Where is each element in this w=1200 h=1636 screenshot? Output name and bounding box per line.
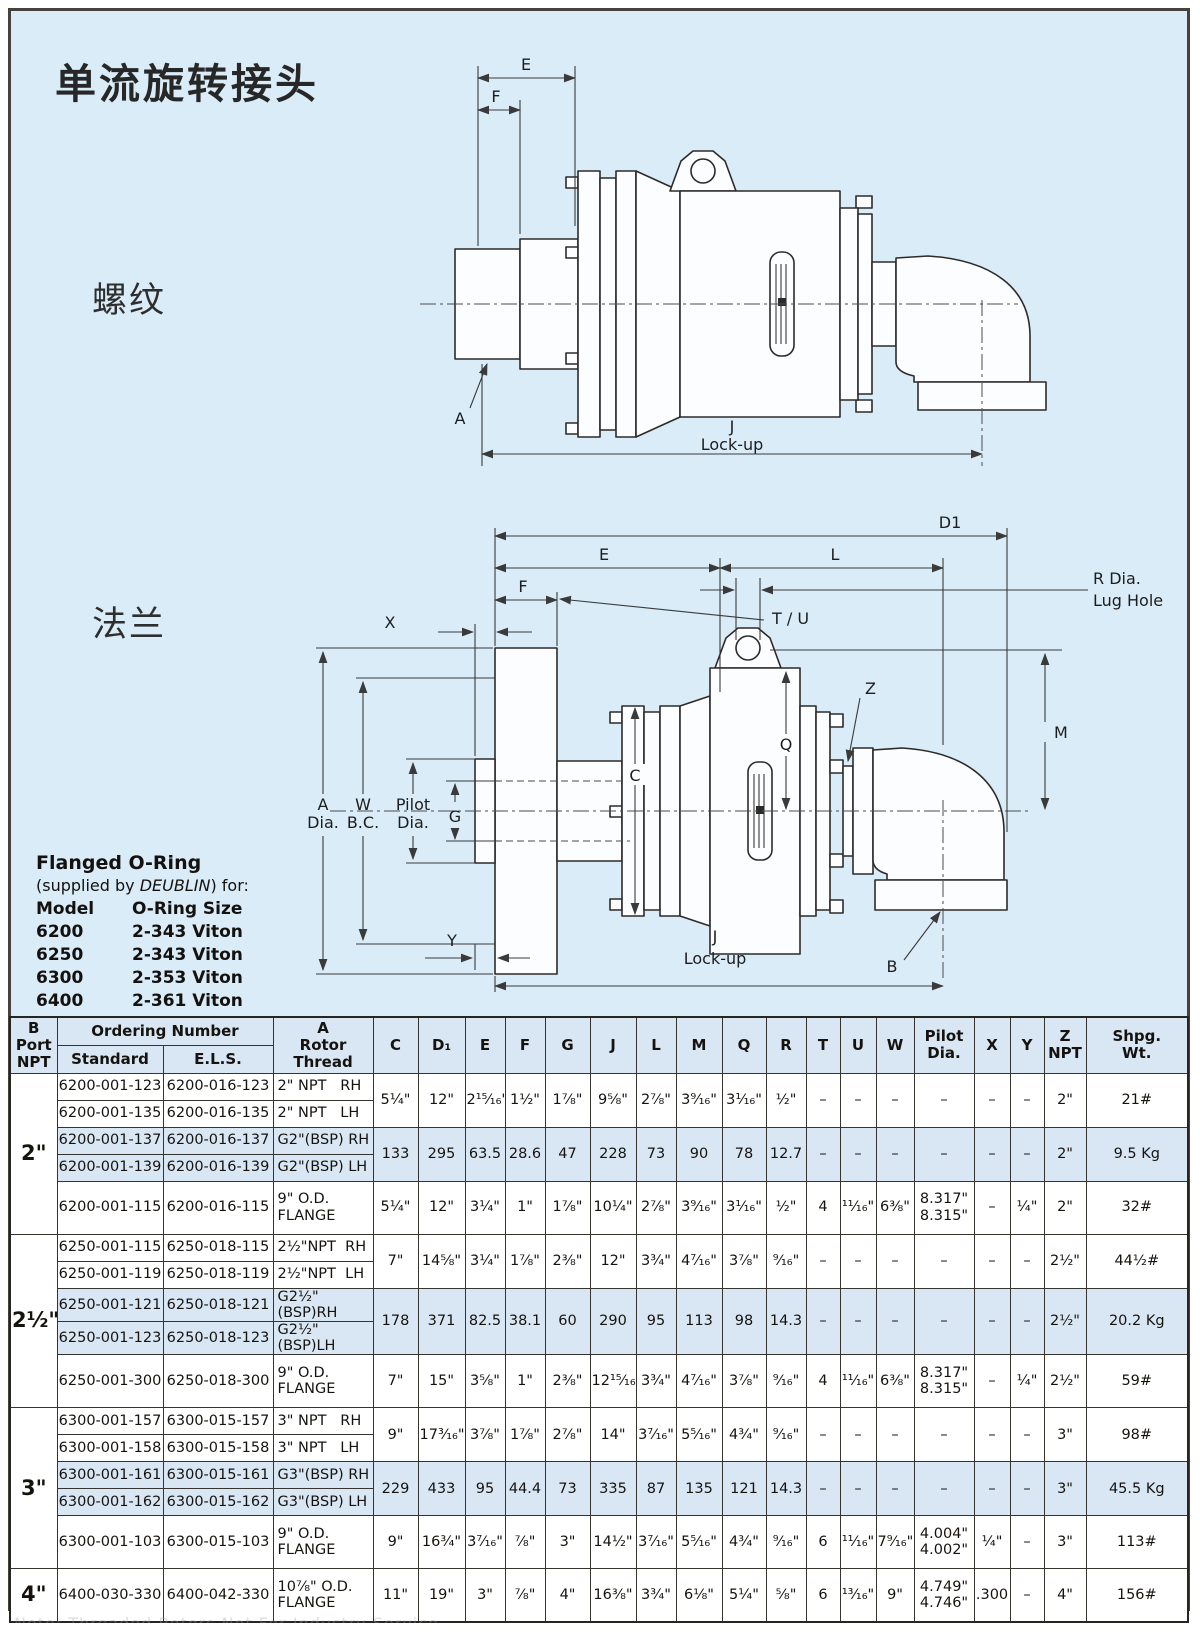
spec-cell: 2½"NPT LH (273, 1261, 373, 1288)
spec-cell: – (1010, 1516, 1044, 1569)
spec-cell: 12" (418, 1073, 465, 1127)
spec-cell: 9" O.D. FLANGE (273, 1516, 373, 1569)
spec-cell: 44½# (1086, 1234, 1188, 1288)
spec-cell: 3⅞" (465, 1408, 505, 1462)
svg-text:E: E (599, 545, 609, 564)
spec-cell: ⁹⁄₁₆" (766, 1234, 806, 1288)
spec-cell: – (806, 1288, 840, 1355)
spec-cell: – (876, 1288, 914, 1355)
spec-cell: – (1010, 1234, 1044, 1288)
spec-cell: 6⅜" (876, 1181, 914, 1234)
spec-cell: 6200-016-137 (163, 1127, 273, 1154)
spec-cell: – (914, 1073, 974, 1127)
svg-text:J: J (729, 417, 735, 436)
label-threaded: 螺纹 (92, 272, 166, 323)
brand-name: DEUBLIN (140, 876, 211, 895)
spec-cell: 12" (590, 1234, 636, 1288)
spec-cell: 4" (1044, 1569, 1086, 1622)
spec-cell: 6300-001-103 (57, 1516, 163, 1569)
spec-cell: 1⅞" (545, 1181, 590, 1234)
spec-cell: G2"(BSP) LH (273, 1154, 373, 1181)
spec-cell: 14.3 (766, 1462, 806, 1516)
spec-cell: 95 (636, 1288, 676, 1355)
svg-text:C: C (629, 766, 640, 785)
spec-cell: 2" (1044, 1073, 1086, 1127)
spec-cell: 6200-016-135 (163, 1100, 273, 1127)
spec-cell: 3" (1044, 1516, 1086, 1569)
spec-cell: 1⅞" (545, 1073, 590, 1127)
spec-cell: 2⅜" (545, 1355, 590, 1408)
spec-cell: 14" (590, 1408, 636, 1462)
spec-cell: 6250-018-123 (163, 1321, 273, 1354)
spec-cell: 14.3 (766, 1288, 806, 1355)
svg-text:Dia.: Dia. (307, 813, 339, 832)
spec-cell: 44.4 (505, 1462, 545, 1516)
flanged-drawing: D1 E L F X T / U R Dia. Lug Hole Z (290, 500, 1160, 1032)
spec-header-cell: U (840, 1017, 876, 1073)
spec-cell: ⁹⁄₁₆" (766, 1516, 806, 1569)
spec-header-cell: D₁ (418, 1017, 465, 1073)
spec-cell: 7⁹⁄₁₆" (876, 1516, 914, 1569)
elbow-outlet-flange (875, 880, 1007, 910)
spec-cell: 3⁷⁄₁₆" (636, 1516, 676, 1569)
svg-text:E: E (521, 55, 531, 74)
spec-cell: – (914, 1408, 974, 1462)
spec-cell: 59# (1086, 1355, 1188, 1408)
spec-cell: 2½"NPT RH (273, 1234, 373, 1261)
svg-text:G: G (449, 807, 461, 826)
spec-cell: 4 (806, 1181, 840, 1234)
spec-cell: – (914, 1288, 974, 1355)
spec-cell: 229 (373, 1462, 418, 1516)
spec-cell: 21# (1086, 1073, 1188, 1127)
spec-cell: 16¾" (418, 1516, 465, 1569)
svg-text:W: W (355, 795, 371, 814)
spec-cell: 6300-001-158 (57, 1435, 163, 1462)
spec-cell: 63.5 (465, 1127, 505, 1181)
spec-cell: 6200-016-123 (163, 1073, 273, 1100)
spec-cell: 6300-015-161 (163, 1462, 273, 1489)
spec-cell: 121 (722, 1462, 766, 1516)
spec-cell: 5⁵⁄₁₆" (676, 1408, 722, 1462)
spec-cell: 3" (545, 1516, 590, 1569)
spec-cell: ⅝" (766, 1569, 806, 1622)
spec-cell: – (806, 1127, 840, 1181)
svg-text:F: F (491, 87, 500, 106)
spec-cell: 14½" (590, 1516, 636, 1569)
spec-cell: 2⅞" (636, 1073, 676, 1127)
spec-cell: 6300-015-162 (163, 1489, 273, 1516)
spec-cell: 5¼" (373, 1181, 418, 1234)
spec-cell: 3⅞" (722, 1355, 766, 1408)
spec-cell: 82.5 (465, 1288, 505, 1355)
threaded-drawing: E F A J Lock-up (370, 46, 1070, 486)
spec-cell: 2½" (1044, 1355, 1086, 1408)
spec-cell: 3⁷⁄₁₆" (465, 1516, 505, 1569)
spec-cell: 12¹⁵⁄₁₆" (590, 1355, 636, 1408)
spec-header-cell: Shpg. Wt. (1086, 1017, 1188, 1073)
spec-cell: 5¼" (722, 1569, 766, 1622)
svg-text:Z: Z (865, 679, 876, 698)
spec-cell: ¼" (974, 1516, 1010, 1569)
spec-header-cell: W (876, 1017, 914, 1073)
spec-cell: 2¹⁵⁄₁₆" (465, 1073, 505, 1127)
spec-cell: 6200-001-137 (57, 1127, 163, 1154)
spec-cell: 14⅝" (418, 1234, 465, 1288)
spec-cell: 6250-018-115 (163, 1234, 273, 1261)
spec-cell: 6300-001-161 (57, 1462, 163, 1489)
spec-cell: 78 (722, 1127, 766, 1181)
oring-row: 62502-343 Viton (36, 944, 346, 967)
spec-cell: 2½" (10, 1234, 57, 1408)
lug-hole (691, 159, 715, 183)
spec-cell: 28.6 (505, 1127, 545, 1181)
spec-header-cell: E (465, 1017, 505, 1073)
page-title: 单流旋转接头 (55, 50, 319, 110)
spec-cell: 3" NPT LH (273, 1435, 373, 1462)
spec-cell: 6200-001-115 (57, 1181, 163, 1234)
spec-cell: 2⅞" (636, 1181, 676, 1234)
spec-cell: 433 (418, 1462, 465, 1516)
spec-cell: – (876, 1073, 914, 1127)
spec-cell: G3"(BSP) RH (273, 1462, 373, 1489)
svg-text:L: L (831, 545, 840, 564)
svg-text:Dia.: Dia. (397, 813, 429, 832)
spec-cell: 2½" (1044, 1288, 1086, 1355)
spec-cell: 3⁹⁄₁₆" (676, 1181, 722, 1234)
spec-cell: – (876, 1234, 914, 1288)
spec-cell: 90 (676, 1127, 722, 1181)
spec-cell: 20.2 Kg (1086, 1288, 1188, 1355)
svg-text:Y: Y (446, 931, 457, 950)
spec-cell: 6250-001-119 (57, 1261, 163, 1288)
spec-cell: 3" (1044, 1462, 1086, 1516)
spec-cell: 3¼" (465, 1234, 505, 1288)
spec-cell: 1" (505, 1355, 545, 1408)
svg-text:F: F (518, 577, 527, 596)
spec-cell: – (876, 1408, 914, 1462)
oring-row: 62002-343 Viton (36, 921, 346, 944)
spec-cell: ½" (766, 1181, 806, 1234)
flanged-union-body (475, 628, 1007, 974)
spec-header-cell: R (766, 1017, 806, 1073)
spec-cell: 1" (505, 1181, 545, 1234)
spec-cell: 3⅞" (722, 1234, 766, 1288)
spec-cell: 3¹⁄₁₆" (722, 1181, 766, 1234)
spec-cell: ⁹⁄₁₆" (766, 1408, 806, 1462)
spec-cell: 17³⁄₁₆" (418, 1408, 465, 1462)
svg-text:A: A (318, 795, 329, 814)
spec-cell: 8.317" 8.315" (914, 1181, 974, 1234)
spec-cell: 2⅞" (545, 1408, 590, 1462)
spec-cell: – (914, 1462, 974, 1516)
svg-text:X: X (385, 613, 396, 632)
spec-cell: ½" (766, 1073, 806, 1127)
spec-cell: 12" (418, 1181, 465, 1234)
spec-cell: 73 (636, 1127, 676, 1181)
spec-cell: ¹³⁄₁₆" (840, 1569, 876, 1622)
spec-cell: 3¼" (465, 1181, 505, 1234)
spec-header-cell: A Rotor Thread (273, 1017, 373, 1073)
spec-cell: – (806, 1408, 840, 1462)
spec-cell: 9" O.D. FLANGE (273, 1355, 373, 1408)
oring-supplied: (supplied by DEUBLIN) for: (36, 876, 346, 895)
spec-cell: – (974, 1408, 1010, 1462)
spec-cell: 2" (1044, 1181, 1086, 1234)
spec-cell: 9" (373, 1408, 418, 1462)
spec-cell: 3" (1044, 1408, 1086, 1462)
spec-cell: 290 (590, 1288, 636, 1355)
spec-cell: 3⁹⁄₁₆" (676, 1073, 722, 1127)
spec-cell: – (1010, 1288, 1044, 1355)
svg-text:T / U: T / U (771, 609, 809, 628)
spec-cell: – (914, 1127, 974, 1181)
spec-header-cell: G (545, 1017, 590, 1073)
spec-header-cell: C (373, 1017, 418, 1073)
spec-cell: 228 (590, 1127, 636, 1181)
spec-cell: 1½" (505, 1073, 545, 1127)
spec-cell: 2" NPT LH (273, 1100, 373, 1127)
svg-text:D1: D1 (939, 513, 962, 532)
spec-cell: 7" (373, 1355, 418, 1408)
spec-table: B Port NPTOrdering NumberA Rotor ThreadC… (9, 1016, 1189, 1623)
spec-cell: 60 (545, 1288, 590, 1355)
spec-cell: 1⅞" (505, 1408, 545, 1462)
svg-text:Q: Q (780, 735, 793, 754)
spec-cell: 156# (1086, 1569, 1188, 1622)
spec-cell: 15" (418, 1355, 465, 1408)
spec-cell: – (840, 1127, 876, 1181)
spec-cell: 3⅝" (465, 1355, 505, 1408)
spec-cell: 6250-018-300 (163, 1355, 273, 1408)
spec-header-cell: E.L.S. (163, 1045, 273, 1073)
spec-cell: 6200-001-123 (57, 1073, 163, 1100)
spec-cell: 4 (806, 1355, 840, 1408)
spec-cell: 6250-001-115 (57, 1234, 163, 1261)
spec-cell: 73 (545, 1462, 590, 1516)
label-flanged: 法兰 (92, 596, 166, 647)
svg-text:Pilot: Pilot (396, 795, 430, 814)
spec-cell: 38.1 (505, 1288, 545, 1355)
spec-cell: 2" (10, 1073, 57, 1234)
oring-row: 64002-361 Viton (36, 990, 346, 1013)
spec-cell: 113 (676, 1288, 722, 1355)
threaded-union-body (455, 151, 1046, 437)
spec-cell: 3¾" (636, 1234, 676, 1288)
spec-cell: 6200-016-115 (163, 1181, 273, 1234)
spec-cell: 6250-001-121 (57, 1288, 163, 1321)
spec-cell: – (974, 1355, 1010, 1408)
spec-cell: – (1010, 1127, 1044, 1181)
spec-cell: 47 (545, 1127, 590, 1181)
spec-cell: G2½"(BSP)RH (273, 1288, 373, 1321)
spec-cell: – (806, 1462, 840, 1516)
svg-text:J: J (712, 927, 718, 946)
elbow (873, 748, 1004, 880)
spec-cell: – (974, 1462, 1010, 1516)
spec-cell: 6⅜" (876, 1355, 914, 1408)
spec-cell: 6300-015-157 (163, 1408, 273, 1435)
spec-cell: 3" NPT RH (273, 1408, 373, 1435)
spec-cell: G2½"(BSP)LH (273, 1321, 373, 1354)
spec-cell: 1⅞" (505, 1234, 545, 1288)
spec-cell: 6250-018-119 (163, 1261, 273, 1288)
spec-cell: 6200-001-139 (57, 1154, 163, 1181)
spec-cell: 6300-015-158 (163, 1435, 273, 1462)
spec-cell: – (974, 1234, 1010, 1288)
spec-cell: – (876, 1127, 914, 1181)
spec-cell: – (1010, 1408, 1044, 1462)
spec-cell: 6300-015-103 (163, 1516, 273, 1569)
spec-cell: G2"(BSP) RH (273, 1127, 373, 1154)
svg-text:B.C.: B.C. (347, 813, 379, 832)
spec-cell: 3" (10, 1408, 57, 1569)
spec-header-cell: Pilot Dia. (914, 1017, 974, 1073)
spec-cell: 4⁷⁄₁₆" (676, 1234, 722, 1288)
spec-cell: – (806, 1234, 840, 1288)
spec-cell: – (1010, 1462, 1044, 1516)
svg-text:B: B (887, 957, 898, 976)
spec-cell: – (840, 1288, 876, 1355)
spec-cell: 5⁵⁄₁₆" (676, 1516, 722, 1569)
spec-cell: 9⅝" (590, 1073, 636, 1127)
spec-header-cell: Ordering Number (57, 1017, 273, 1045)
spec-cell: 6250-018-121 (163, 1288, 273, 1321)
spec-cell: 2" NPT RH (273, 1073, 373, 1100)
spec-cell: ¹¹⁄₁₆" (840, 1355, 876, 1408)
spec-cell: – (974, 1181, 1010, 1234)
spec-cell: – (974, 1127, 1010, 1181)
spec-cell: 95 (465, 1462, 505, 1516)
lug-hole (736, 636, 760, 660)
spec-header-cell: Z NPT (1044, 1017, 1086, 1073)
spec-cell: 4.004" 4.002" (914, 1516, 974, 1569)
spec-cell: 9" (876, 1569, 914, 1622)
svg-text:A: A (455, 409, 466, 428)
spec-cell: 135 (676, 1462, 722, 1516)
spec-cell: 133 (373, 1127, 418, 1181)
spec-cell: 295 (418, 1127, 465, 1181)
spec-header-cell: J (590, 1017, 636, 1073)
spec-cell: – (806, 1073, 840, 1127)
spec-header-cell: Y (1010, 1017, 1044, 1073)
spec-cell: 3⁷⁄₁₆" (636, 1408, 676, 1462)
spec-header-cell: L (636, 1017, 676, 1073)
spec-cell: – (1010, 1569, 1044, 1622)
spec-header-cell: B Port NPT (10, 1017, 57, 1073)
svg-text:M: M (1054, 723, 1068, 742)
spec-cell: 335 (590, 1462, 636, 1516)
spec-header-cell: F (505, 1017, 545, 1073)
spec-cell: 2½" (1044, 1234, 1086, 1288)
svg-text:Lug Hole: Lug Hole (1093, 591, 1163, 610)
spec-cell: ¼" (1010, 1355, 1044, 1408)
svg-text:Lock-up: Lock-up (684, 949, 747, 968)
spec-cell: 87 (636, 1462, 676, 1516)
spec-cell: 98 (722, 1288, 766, 1355)
spec-header-cell: T (806, 1017, 840, 1073)
spec-cell: 98# (1086, 1408, 1188, 1462)
spec-cell: – (974, 1073, 1010, 1127)
spec-cell: 178 (373, 1288, 418, 1355)
spec-cell: 6300-001-162 (57, 1489, 163, 1516)
page: 单流旋转接头 螺纹 法兰 (0, 0, 1200, 1636)
spec-cell: 4⁷⁄₁₆" (676, 1355, 722, 1408)
spec-cell: – (1010, 1073, 1044, 1127)
elbow (896, 256, 1030, 382)
spec-cell: 4.749" 4.746" (914, 1569, 974, 1622)
spec-cell: – (840, 1234, 876, 1288)
svg-text:Lock-up: Lock-up (701, 435, 764, 454)
spec-cell: 5¼" (373, 1073, 418, 1127)
spec-cell: 6200-016-139 (163, 1154, 273, 1181)
spec-cell: 10¼" (590, 1181, 636, 1234)
spec-cell: – (840, 1073, 876, 1127)
spec-cell: 113# (1086, 1516, 1188, 1569)
spec-cell: 9" O.D. FLANGE (273, 1181, 373, 1234)
footnote: Note: Threaded Rotors Not For Industry S… (14, 1614, 714, 1623)
spec-cell: – (974, 1288, 1010, 1355)
spec-cell: 4¾" (722, 1408, 766, 1462)
spec-cell: G3"(BSP) LH (273, 1489, 373, 1516)
spec-cell: – (840, 1408, 876, 1462)
spec-cell: 6250-001-300 (57, 1355, 163, 1408)
spec-header-cell: X (974, 1017, 1010, 1073)
oring-note: Flanged O-Ring (supplied by DEUBLIN) for… (36, 852, 346, 1013)
spec-cell: 9.5 Kg (1086, 1127, 1188, 1181)
spec-cell: – (840, 1462, 876, 1516)
spec-cell: – (876, 1462, 914, 1516)
spec-cell: ¹¹⁄₁₆" (840, 1181, 876, 1234)
spec-cell: 4¾" (722, 1516, 766, 1569)
spec-header-cell: Q (722, 1017, 766, 1073)
oring-header-row: ModelO-Ring Size (36, 898, 346, 921)
oring-row: 63002-353 Viton (36, 967, 346, 990)
spec-cell: 8.317" 8.315" (914, 1355, 974, 1408)
spec-cell: – (914, 1234, 974, 1288)
spec-cell: 7" (373, 1234, 418, 1288)
spec-cell: ¹¹⁄₁₆" (840, 1516, 876, 1569)
spec-cell: 3¹⁄₁₆" (722, 1073, 766, 1127)
spec-cell: .300 (974, 1569, 1010, 1622)
spec-cell: 12.7 (766, 1127, 806, 1181)
spec-cell: 6 (806, 1569, 840, 1622)
spec-cell: 6300-001-157 (57, 1408, 163, 1435)
spec-cell: 6200-001-135 (57, 1100, 163, 1127)
spec-cell: ⁹⁄₁₆" (766, 1355, 806, 1408)
spec-cell: ¼" (1010, 1181, 1044, 1234)
spec-header-cell: Standard (57, 1045, 163, 1073)
spec-cell: 2" (1044, 1127, 1086, 1181)
spec-cell: 6250-001-123 (57, 1321, 163, 1354)
spec-cell: 2⅜" (545, 1234, 590, 1288)
spec-cell: 9" (373, 1516, 418, 1569)
svg-text:R Dia.: R Dia. (1093, 569, 1141, 588)
spec-cell: 3¾" (636, 1355, 676, 1408)
spec-cell: 371 (418, 1288, 465, 1355)
spec-header-cell: M (676, 1017, 722, 1073)
spec-cell: 32# (1086, 1181, 1188, 1234)
spec-cell: 6 (806, 1516, 840, 1569)
oring-title: Flanged O-Ring (36, 852, 346, 874)
spec-cell: 45.5 Kg (1086, 1462, 1188, 1516)
spec-cell: ⅞" (505, 1516, 545, 1569)
